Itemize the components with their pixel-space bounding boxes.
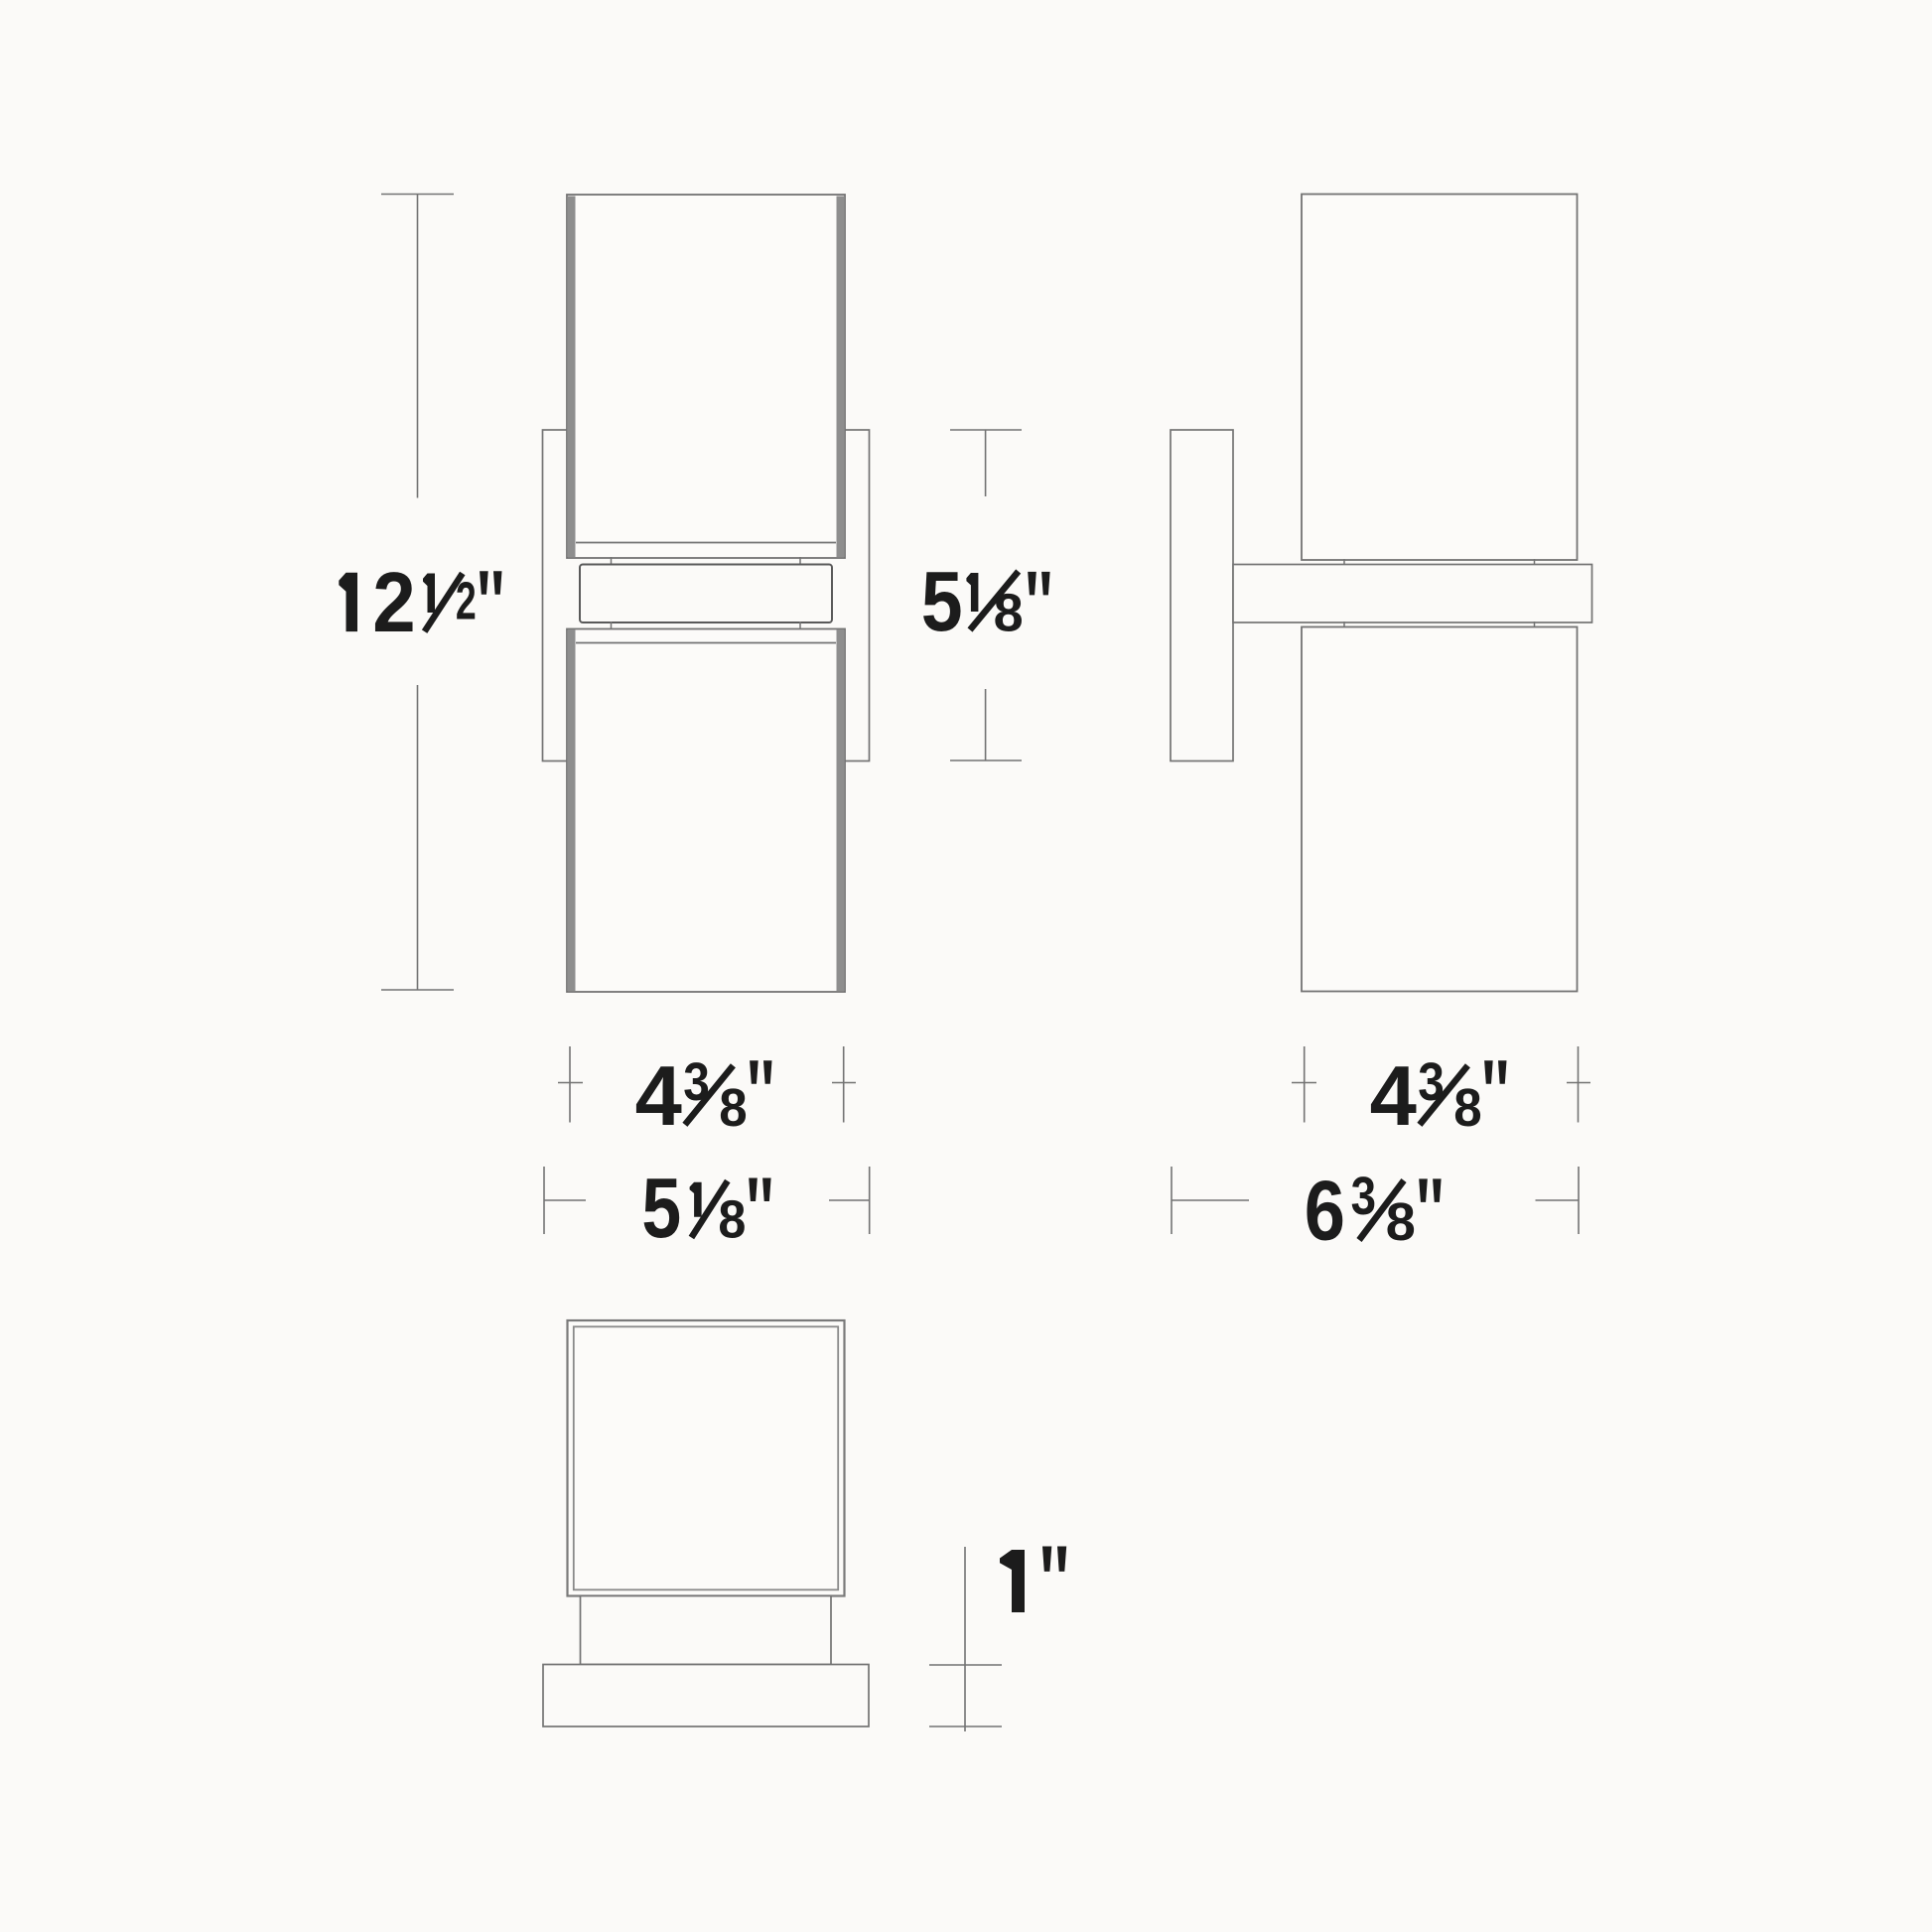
svg-text:4: 4 bbox=[1370, 1049, 1417, 1144]
svg-text:8: 8 bbox=[994, 584, 1024, 643]
svg-text:5: 5 bbox=[641, 1162, 681, 1256]
svg-text:8: 8 bbox=[1386, 1192, 1416, 1252]
svg-text:5: 5 bbox=[921, 555, 963, 649]
svg-text:8: 8 bbox=[718, 1190, 746, 1250]
svg-text:2: 2 bbox=[456, 571, 477, 630]
svg-text:4: 4 bbox=[635, 1049, 682, 1144]
svg-text:8: 8 bbox=[719, 1078, 747, 1138]
svg-text:8: 8 bbox=[1453, 1078, 1481, 1138]
svg-text:6: 6 bbox=[1305, 1165, 1345, 1259]
svg-text:2: 2 bbox=[372, 556, 415, 650]
